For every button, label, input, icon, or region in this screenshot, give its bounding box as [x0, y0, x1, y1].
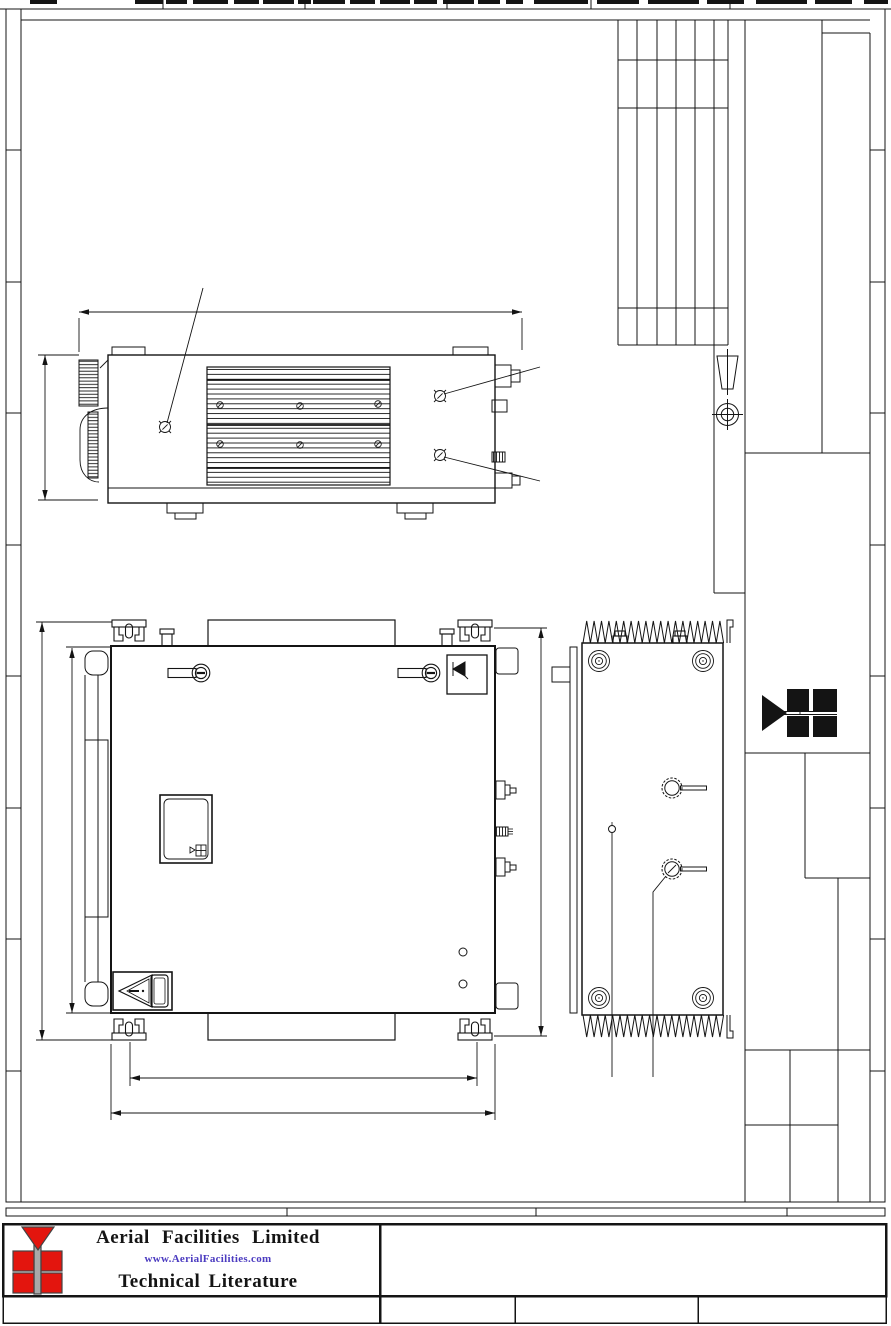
plan-left-fins [79, 360, 108, 482]
company-name: Aerial Facilities Limited [63, 1227, 353, 1249]
footer-title-cell [380, 1224, 886, 1296]
captive-screw-icon [398, 664, 440, 682]
torx-screw-icon [159, 421, 171, 433]
leader-line [444, 367, 540, 394]
side-top-fins [583, 621, 724, 643]
left-zone-ticks [6, 150, 21, 1071]
label-mini-logo-icon [190, 845, 206, 856]
front-panel [111, 646, 495, 1013]
bushing-icon [693, 651, 714, 672]
first-angle-projection-icon [712, 349, 743, 430]
bottom-zone-strip [6, 1208, 885, 1216]
drawing-line-art [0, 0, 891, 1326]
buzzer-icon [447, 655, 487, 694]
torx-screw-icon [434, 390, 446, 402]
projection-symbol-column [712, 345, 745, 593]
bushing-icon [693, 988, 714, 1009]
captive-screw-icon [168, 664, 210, 682]
title-block-grid [745, 20, 870, 1202]
side-view-leaders [612, 833, 666, 1077]
rail-foot [458, 620, 492, 641]
panel-hole [459, 948, 467, 956]
rail-foot [112, 620, 146, 641]
afl-arrow-icon [762, 689, 837, 737]
revision-table-grid [618, 20, 728, 345]
coax-connector-icon [662, 859, 707, 879]
rail-foot [112, 1019, 146, 1040]
top-zone-strip [0, 0, 891, 9]
plan-right-connectors [492, 365, 520, 488]
drawing-sheet: Aerial Facilities Limited www.AerialFaci… [0, 0, 891, 1326]
afl-red-logo-icon [13, 1227, 62, 1294]
front-right-connectors [495, 648, 518, 1009]
cut-off-text-bars [30, 0, 888, 4]
bushing-icon [589, 988, 610, 1009]
front-view-dimensions [36, 622, 547, 1120]
label-plate [160, 795, 212, 863]
panel-hole [459, 980, 467, 988]
side-view [552, 620, 733, 1077]
torx-screw-icon [434, 449, 446, 461]
front-left-rail [85, 651, 108, 1006]
plan-feet [167, 503, 433, 519]
rail-foot [458, 1019, 492, 1040]
warning-triangle-icon [113, 972, 172, 1010]
plan-view [38, 288, 540, 519]
coax-connector-icon [662, 778, 707, 798]
sheet-frame [6, 9, 885, 1216]
bushing-icon [589, 651, 610, 672]
plan-heatsink [207, 367, 390, 485]
company-website: www.AerialFacilities.com [63, 1253, 353, 1266]
side-body [582, 643, 723, 1015]
document-type: Technical Literature [63, 1271, 353, 1293]
right-zone-ticks [870, 150, 885, 1071]
footer-bottom-row [3, 1296, 886, 1323]
front-view [36, 620, 547, 1120]
